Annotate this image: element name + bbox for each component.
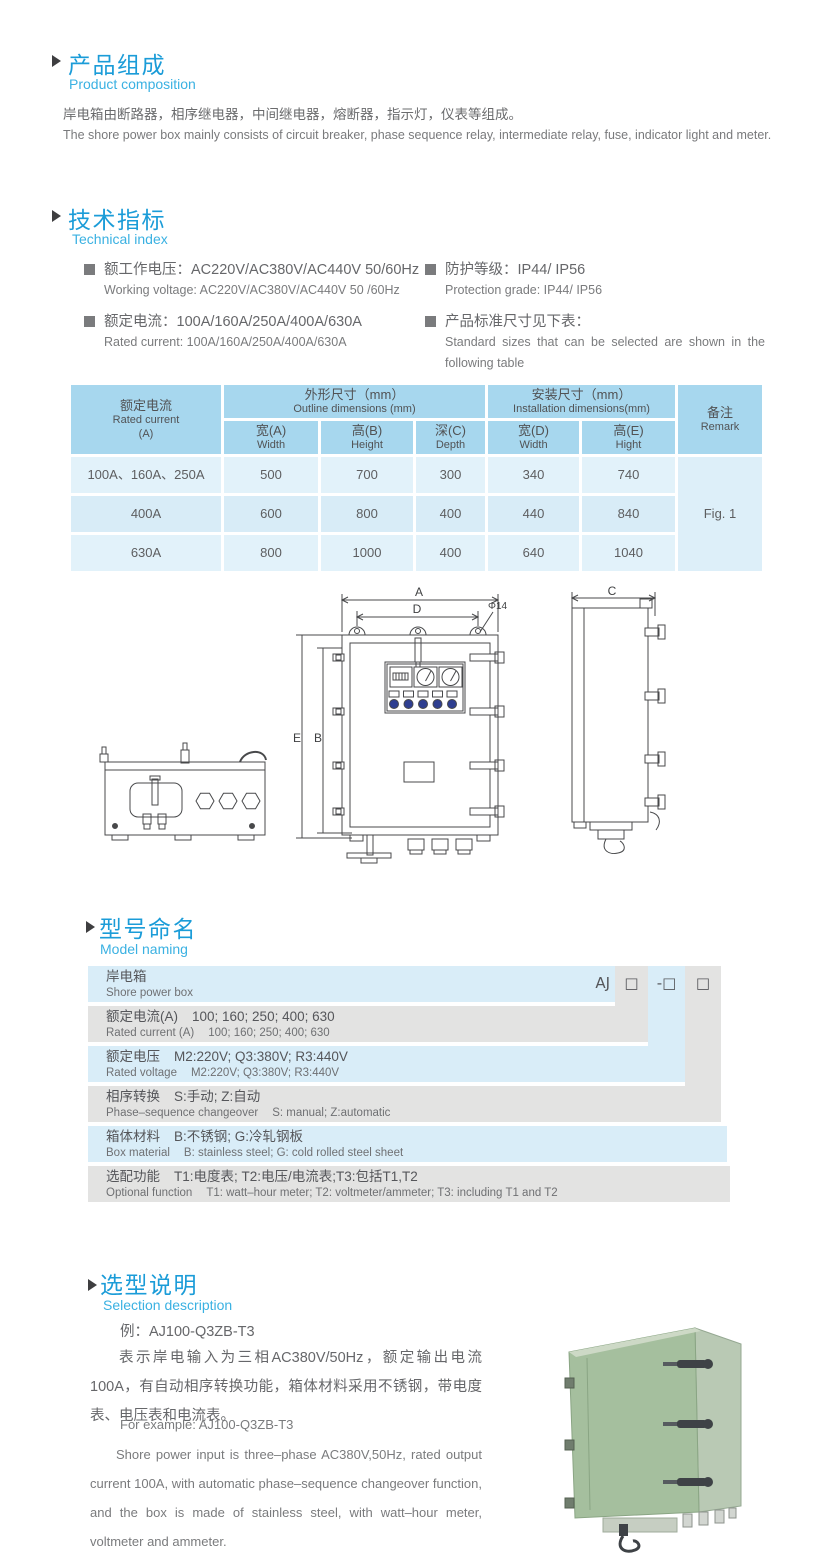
section-subtitle-technical: Technical index	[72, 231, 168, 247]
table-header-remark: 备注 Remark	[678, 385, 762, 454]
spec-rated-current-zh: 额定电流：100A/160A/250A/400A/630A	[84, 310, 362, 331]
dimension-drawings: A D Φ14 E B C	[65, 585, 765, 895]
square-bullet-icon	[84, 264, 95, 275]
square-bullet-icon	[84, 316, 95, 327]
section-arrow-icon	[52, 210, 61, 222]
section-arrow-icon	[88, 1279, 97, 1291]
model-code-box-1: □	[615, 974, 648, 992]
dim-label-phi14: Φ14	[488, 601, 508, 612]
section-title-model: 型号命名	[99, 910, 197, 944]
spec-protection-en: Protection grade: IP44/ IP56	[445, 283, 602, 297]
spec-sizes-zh: 产品标准尺寸见下表：	[425, 310, 590, 331]
model-naming-diagram: 岸电箱 Shore power box 额定电流(A)100; 160; 250…	[88, 966, 730, 1204]
model-code-prefix: AJ	[566, 974, 610, 992]
spec-working-voltage-zh: 额工作电压：AC220V/AC380V/AC440V 50/60Hz	[84, 258, 419, 279]
section-subtitle-composition: Product composition	[69, 76, 196, 92]
section-subtitle-selection: Selection description	[103, 1297, 232, 1313]
datasheet-page: 产品组成 Product composition 岸电箱由断路器，相序继电器，中…	[0, 0, 830, 1568]
table-header-outline: 外形尺寸（mm） Outline dimensions (mm)	[224, 385, 485, 418]
spec-sizes-en: Standard sizes that can be selected are …	[445, 332, 765, 374]
table-row: 100A、160A、250A 500 700 300 340 740 Fig. …	[71, 457, 762, 493]
dim-label-e: E	[293, 731, 301, 745]
table-row: 400A 600 800 400 440 840	[71, 496, 762, 532]
composition-body-zh: 岸电箱由断路器，相序继电器，中间继电器，熔断器，指示灯，仪表等组成。	[63, 103, 522, 123]
section-title-composition: 产品组成	[68, 46, 166, 80]
spec-protection-zh: 防护等级：IP44/ IP56	[425, 258, 585, 279]
model-row-voltage: 额定电压M2:220V; Q3:380V; R3:440V Rated volt…	[88, 1046, 685, 1082]
dim-label-a: A	[415, 585, 423, 599]
model-row-material: 箱体材料B:不锈钢; G:冷轧钢板 Box materialB: stainle…	[88, 1126, 727, 1162]
model-row-phase: 相序转换S:手动; Z:自动 Phase–sequence changeover…	[88, 1086, 721, 1122]
model-row-optional: 选配功能T1:电度表; T2:电压/电流表;T3:包括T1,T2 Optiona…	[88, 1166, 730, 1202]
table-header-install: 安装尺寸（mm） Installation dimensions(mm)	[488, 385, 675, 418]
table-header-current: 额定电流 Rated current (A)	[71, 385, 221, 454]
spec-working-voltage-en: Working voltage: AC220V/AC380V/AC440V 50…	[104, 283, 400, 297]
selection-paragraph-en: Shore power input is three–phase AC380V,…	[90, 1440, 482, 1556]
model-code-box-3: □	[685, 974, 721, 992]
section-title-selection: 选型说明	[100, 1266, 198, 1300]
model-row-box: 岸电箱 Shore power box	[88, 966, 615, 1002]
table-row: 630A 800 1000 400 640 1040	[71, 535, 762, 571]
composition-body-en: The shore power box mainly consists of c…	[63, 128, 771, 142]
table-subheader: 深(C)Depth	[416, 421, 485, 454]
selection-example-zh: 例：AJ100-Q3ZB-T3	[120, 1320, 255, 1341]
dimensions-table: 额定电流 Rated current (A) 外形尺寸（mm） Outline …	[68, 382, 765, 574]
selection-example-en: For example: AJ100-Q3ZB-T3	[120, 1417, 293, 1432]
model-code-box-2: -□	[648, 974, 685, 992]
section-subtitle-model: Model naming	[100, 941, 188, 957]
dim-label-b: B	[314, 731, 322, 745]
section-arrow-icon	[52, 55, 61, 67]
table-remark-cell: Fig. 1	[678, 457, 762, 571]
spec-rated-current-en: Rated current: 100A/160A/250A/400A/630A	[104, 335, 347, 349]
section-arrow-icon	[86, 921, 95, 933]
dim-label-d: D	[413, 602, 422, 616]
dim-label-c: C	[608, 585, 617, 598]
section-title-technical: 技术指标	[68, 201, 166, 235]
table-subheader: 宽(A)Width	[224, 421, 318, 454]
product-photo	[543, 1298, 813, 1566]
table-subheader: 高(E)Hight	[582, 421, 675, 454]
model-row-current: 额定电流(A)100; 160; 250; 400; 630 Rated cur…	[88, 1006, 648, 1042]
square-bullet-icon	[425, 316, 436, 327]
table-subheader: 高(B)Height	[321, 421, 413, 454]
square-bullet-icon	[425, 264, 436, 275]
table-subheader: 宽(D)Width	[488, 421, 579, 454]
